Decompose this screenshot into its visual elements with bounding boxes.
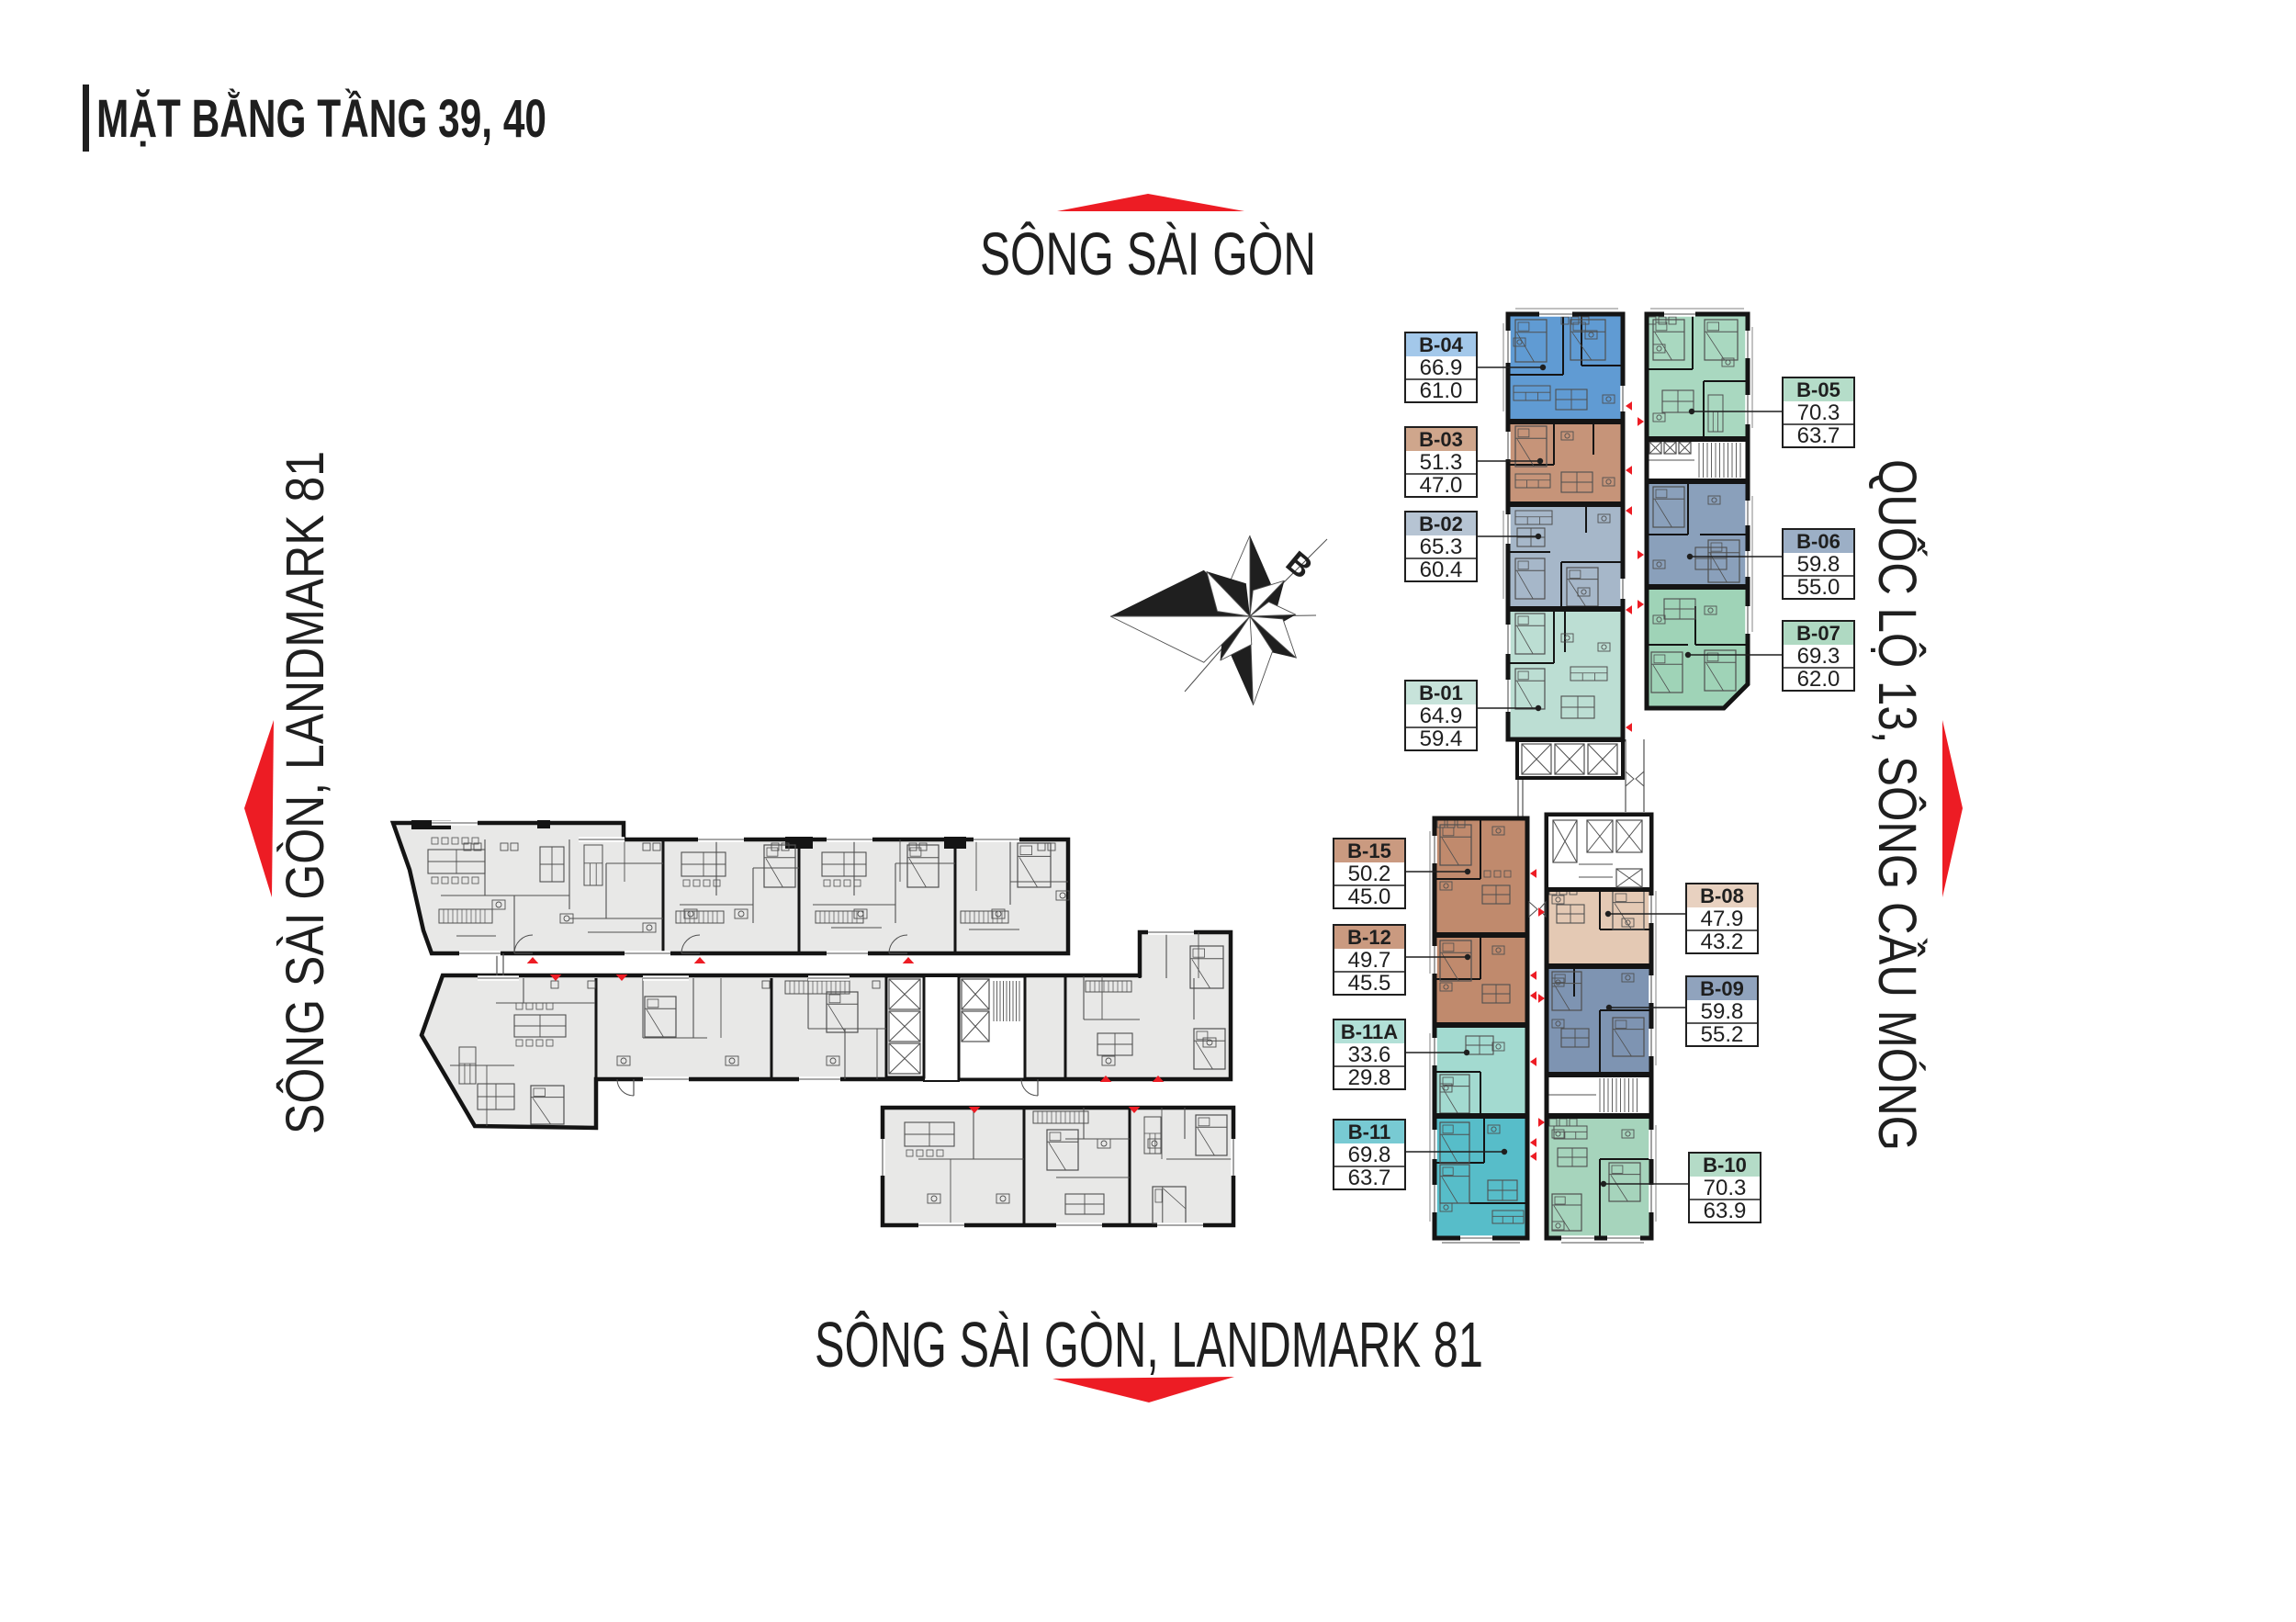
svg-text:B-06: B-06 [1796, 530, 1840, 553]
svg-text:45.0: 45.0 [1348, 884, 1391, 909]
svg-text:33.6: 33.6 [1348, 1042, 1391, 1067]
svg-text:70.3: 70.3 [1797, 400, 1840, 425]
svg-text:63.7: 63.7 [1348, 1166, 1391, 1190]
svg-text:50.2: 50.2 [1348, 862, 1391, 886]
svg-text:B-08: B-08 [1700, 884, 1744, 907]
svg-text:47.0: 47.0 [1420, 473, 1463, 498]
svg-text:69.8: 69.8 [1348, 1143, 1391, 1167]
svg-text:QUỐC LỘ 13, SÔNG CẦU MÓNG: QUỐC LỘ 13, SÔNG CẦU MÓNG [1867, 459, 1927, 1151]
svg-text:49.7: 49.7 [1348, 948, 1391, 973]
svg-text:59.8: 59.8 [1701, 999, 1744, 1024]
svg-text:29.8: 29.8 [1348, 1065, 1391, 1090]
svg-text:SÔNG SÀI GÒN, LANDMARK 81: SÔNG SÀI GÒN, LANDMARK 81 [815, 1309, 1483, 1380]
svg-text:61.0: 61.0 [1420, 378, 1463, 403]
svg-text:SÔNG SÀI GÒN: SÔNG SÀI GÒN [980, 220, 1316, 287]
svg-text:B-05: B-05 [1796, 378, 1840, 401]
svg-text:B-15: B-15 [1347, 839, 1391, 862]
svg-text:SÔNG SÀI GÒN, LANDMARK 81: SÔNG SÀI GÒN, LANDMARK 81 [276, 451, 335, 1134]
svg-text:B-11: B-11 [1348, 1121, 1390, 1143]
svg-text:43.2: 43.2 [1701, 929, 1744, 954]
svg-text:64.9: 64.9 [1420, 704, 1463, 728]
svg-text:66.9: 66.9 [1420, 355, 1463, 380]
svg-text:47.9: 47.9 [1701, 907, 1744, 931]
svg-text:55.0: 55.0 [1797, 575, 1840, 600]
svg-text:59.4: 59.4 [1420, 727, 1463, 751]
svg-text:45.5: 45.5 [1348, 971, 1391, 996]
svg-text:60.4: 60.4 [1420, 558, 1463, 582]
svg-text:55.2: 55.2 [1701, 1022, 1744, 1047]
svg-text:51.3: 51.3 [1420, 450, 1463, 475]
svg-text:69.3: 69.3 [1797, 644, 1840, 669]
svg-text:70.3: 70.3 [1704, 1176, 1747, 1200]
svg-text:62.0: 62.0 [1797, 667, 1840, 692]
svg-text:B-07: B-07 [1796, 622, 1840, 645]
svg-text:B-10: B-10 [1703, 1154, 1747, 1177]
svg-text:B-11A: B-11A [1341, 1020, 1398, 1043]
svg-text:B-09: B-09 [1700, 977, 1744, 1000]
svg-text:B-03: B-03 [1419, 428, 1463, 451]
svg-text:63.9: 63.9 [1704, 1199, 1747, 1223]
svg-text:B-02: B-02 [1419, 513, 1463, 535]
svg-text:63.7: 63.7 [1797, 423, 1840, 448]
svg-text:59.8: 59.8 [1797, 552, 1840, 577]
svg-text:65.3: 65.3 [1420, 535, 1463, 559]
svg-text:B-04: B-04 [1419, 333, 1463, 356]
svg-text:MẶT BẰNG TẦNG 39, 40: MẶT BẰNG TẦNG 39, 40 [96, 89, 546, 149]
svg-text:B-12: B-12 [1347, 926, 1391, 949]
svg-text:B-01: B-01 [1419, 681, 1463, 704]
